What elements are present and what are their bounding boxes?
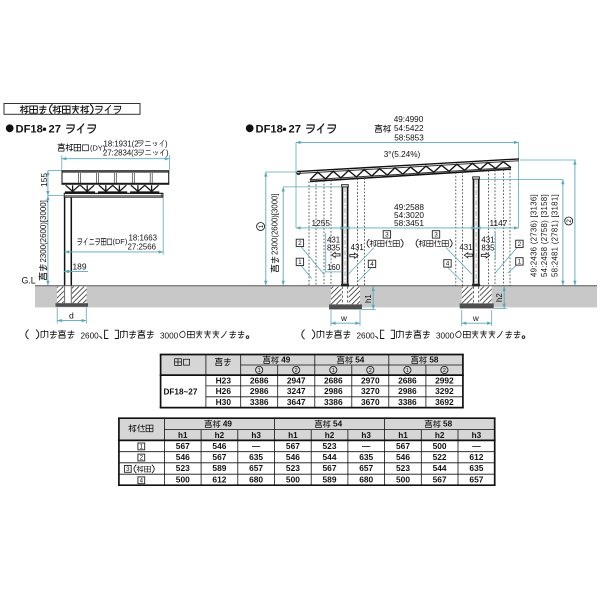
- svg-text:1: 1: [406, 368, 409, 374]
- svg-text:2600: 2600: [81, 331, 100, 340]
- svg-text:): ): [165, 139, 168, 148]
- svg-text:w: w: [340, 314, 347, 323]
- svg-text:431: 431: [459, 243, 472, 252]
- svg-text:1147: 1147: [490, 218, 508, 228]
- svg-text:58:2481 (2781) [3181]: 58:2481 (2781) [3181]: [551, 194, 560, 277]
- svg-text:523: 523: [286, 463, 300, 473]
- svg-text:—: —: [362, 441, 371, 451]
- svg-text:DF18: DF18: [16, 124, 43, 136]
- svg-text:3270: 3270: [361, 386, 380, 396]
- svg-text:27: 27: [289, 124, 301, 136]
- svg-text:3: 3: [434, 232, 438, 239]
- svg-text:58: 58: [443, 420, 453, 429]
- svg-text:54: 54: [333, 420, 343, 429]
- svg-text:—: —: [472, 441, 481, 451]
- svg-text:2: 2: [518, 241, 522, 248]
- svg-text:544: 544: [433, 463, 447, 473]
- svg-text:657: 657: [249, 463, 263, 473]
- svg-text:522: 522: [433, 452, 447, 462]
- svg-text:(DF): (DF): [113, 237, 128, 246]
- svg-text:2300(2600)[3000]: 2300(2600)[3000]: [39, 200, 48, 262]
- svg-text:3386: 3386: [324, 397, 343, 407]
- svg-text:h3: h3: [251, 431, 261, 440]
- svg-text:523: 523: [323, 441, 337, 451]
- svg-text:—: —: [252, 441, 261, 451]
- svg-text:546: 546: [212, 441, 226, 451]
- svg-text:27: 27: [49, 124, 61, 136]
- svg-text:567: 567: [433, 475, 447, 485]
- svg-text:567: 567: [396, 441, 410, 451]
- svg-text:3: 3: [126, 466, 130, 473]
- svg-text:w: w: [472, 314, 479, 323]
- svg-text:589: 589: [323, 475, 337, 485]
- svg-text:612: 612: [212, 475, 226, 485]
- svg-text:3292: 3292: [435, 386, 454, 396]
- svg-text:2970: 2970: [361, 375, 380, 385]
- svg-text:635: 635: [359, 452, 373, 462]
- svg-text:1255: 1255: [312, 218, 331, 228]
- svg-text:3°(5.24%): 3°(5.24%): [384, 150, 421, 159]
- svg-text:523: 523: [396, 463, 410, 473]
- svg-text:3692: 3692: [435, 397, 454, 407]
- svg-text:H23: H23: [216, 375, 232, 385]
- svg-text:1: 1: [298, 259, 302, 266]
- svg-text:500: 500: [396, 475, 410, 485]
- svg-text:DF18~27: DF18~27: [164, 388, 198, 397]
- svg-text:1: 1: [258, 368, 261, 374]
- svg-text:h1: h1: [398, 431, 408, 440]
- svg-text:680: 680: [359, 475, 373, 485]
- svg-text:2686: 2686: [324, 375, 343, 385]
- svg-text:160: 160: [327, 263, 341, 272]
- svg-text:h2: h2: [495, 293, 504, 302]
- svg-text:189: 189: [73, 262, 87, 272]
- svg-text:546: 546: [176, 452, 190, 462]
- svg-text:h2: h2: [325, 431, 335, 440]
- svg-text:G.L: G.L: [22, 276, 36, 286]
- svg-text:2: 2: [566, 219, 573, 223]
- svg-text:155: 155: [39, 173, 49, 187]
- svg-text:2986: 2986: [324, 386, 343, 396]
- svg-text:3647: 3647: [287, 397, 306, 407]
- svg-text:49: 49: [223, 420, 233, 429]
- svg-text:DF18: DF18: [256, 124, 283, 136]
- svg-text:567: 567: [286, 441, 300, 451]
- svg-text:635: 635: [469, 463, 483, 473]
- svg-text:h2: h2: [215, 431, 225, 440]
- svg-text:544: 544: [323, 452, 337, 462]
- svg-text:612: 612: [469, 452, 483, 462]
- svg-text:2: 2: [140, 455, 144, 462]
- svg-text:2: 2: [443, 368, 446, 374]
- svg-text:2947: 2947: [287, 375, 306, 385]
- svg-text:835: 835: [327, 243, 341, 252]
- svg-text:3: 3: [385, 232, 389, 239]
- svg-text:835: 835: [481, 243, 495, 252]
- svg-text:2986: 2986: [250, 386, 269, 396]
- svg-text:3386: 3386: [250, 397, 269, 407]
- svg-text:54: 54: [355, 356, 365, 365]
- svg-text:4: 4: [446, 261, 450, 268]
- svg-text:1: 1: [140, 443, 144, 450]
- svg-text:2992: 2992: [435, 375, 454, 385]
- svg-text:657: 657: [359, 463, 373, 473]
- svg-text:h1: h1: [288, 431, 298, 440]
- svg-text:h3: h3: [361, 431, 371, 440]
- svg-text:2686: 2686: [250, 375, 269, 385]
- svg-text:H30: H30: [216, 397, 232, 407]
- svg-text:h3: h3: [472, 431, 482, 440]
- svg-text:H26: H26: [216, 386, 232, 396]
- svg-text:h1: h1: [364, 294, 373, 303]
- svg-text:431: 431: [351, 243, 364, 252]
- svg-text:4: 4: [140, 477, 144, 484]
- svg-text:546: 546: [286, 452, 300, 462]
- svg-text:546: 546: [396, 452, 410, 462]
- svg-text:2600: 2600: [357, 331, 376, 340]
- svg-text:567: 567: [212, 452, 226, 462]
- svg-text:500: 500: [176, 475, 190, 485]
- svg-text:54:5422: 54:5422: [394, 124, 424, 133]
- svg-text:27:2834(3: 27:2834(3: [103, 149, 138, 158]
- svg-text:3000: 3000: [160, 331, 179, 340]
- svg-text:3670: 3670: [361, 397, 380, 407]
- svg-text:3000: 3000: [436, 331, 455, 340]
- svg-text:49:2436 (2736) [3136]: 49:2436 (2736) [3136]: [530, 194, 539, 277]
- svg-text:): ): [166, 149, 169, 158]
- svg-text:4: 4: [370, 261, 374, 268]
- svg-text:500: 500: [433, 441, 447, 451]
- svg-text:54:2458 (2758) [3158]: 54:2458 (2758) [3158]: [540, 194, 549, 277]
- svg-text:635: 635: [249, 452, 263, 462]
- svg-text:2300(2600)[3000]: 2300(2600)[3000]: [271, 193, 280, 255]
- svg-text:567: 567: [176, 441, 190, 451]
- svg-text:2: 2: [295, 368, 298, 374]
- svg-text:58:3451: 58:3451: [394, 218, 424, 228]
- svg-text:d: d: [69, 311, 74, 321]
- svg-text:18:1931(2: 18:1931(2: [104, 139, 139, 148]
- svg-text:49: 49: [281, 356, 291, 365]
- svg-text:2686: 2686: [398, 375, 417, 385]
- svg-text:2: 2: [298, 240, 302, 247]
- svg-text:h1: h1: [178, 431, 188, 440]
- svg-text:2986: 2986: [398, 386, 417, 396]
- svg-text:3386: 3386: [398, 397, 417, 407]
- svg-text:27:2566: 27:2566: [128, 242, 157, 251]
- svg-text:567: 567: [323, 463, 337, 473]
- svg-text:1: 1: [518, 259, 522, 266]
- svg-text:680: 680: [249, 475, 263, 485]
- svg-text:1: 1: [258, 224, 265, 228]
- svg-text:1: 1: [332, 368, 335, 374]
- svg-text:18:1663: 18:1663: [129, 233, 158, 242]
- svg-text:49:4990: 49:4990: [394, 115, 424, 124]
- svg-text:h2: h2: [435, 431, 445, 440]
- svg-text:58:5853: 58:5853: [394, 133, 424, 142]
- svg-text:3247: 3247: [287, 386, 306, 396]
- svg-text:589: 589: [212, 463, 226, 473]
- svg-text:2: 2: [369, 368, 372, 374]
- svg-text:500: 500: [286, 475, 300, 485]
- svg-text:657: 657: [469, 475, 483, 485]
- svg-text:58: 58: [429, 356, 439, 365]
- svg-text:523: 523: [176, 463, 190, 473]
